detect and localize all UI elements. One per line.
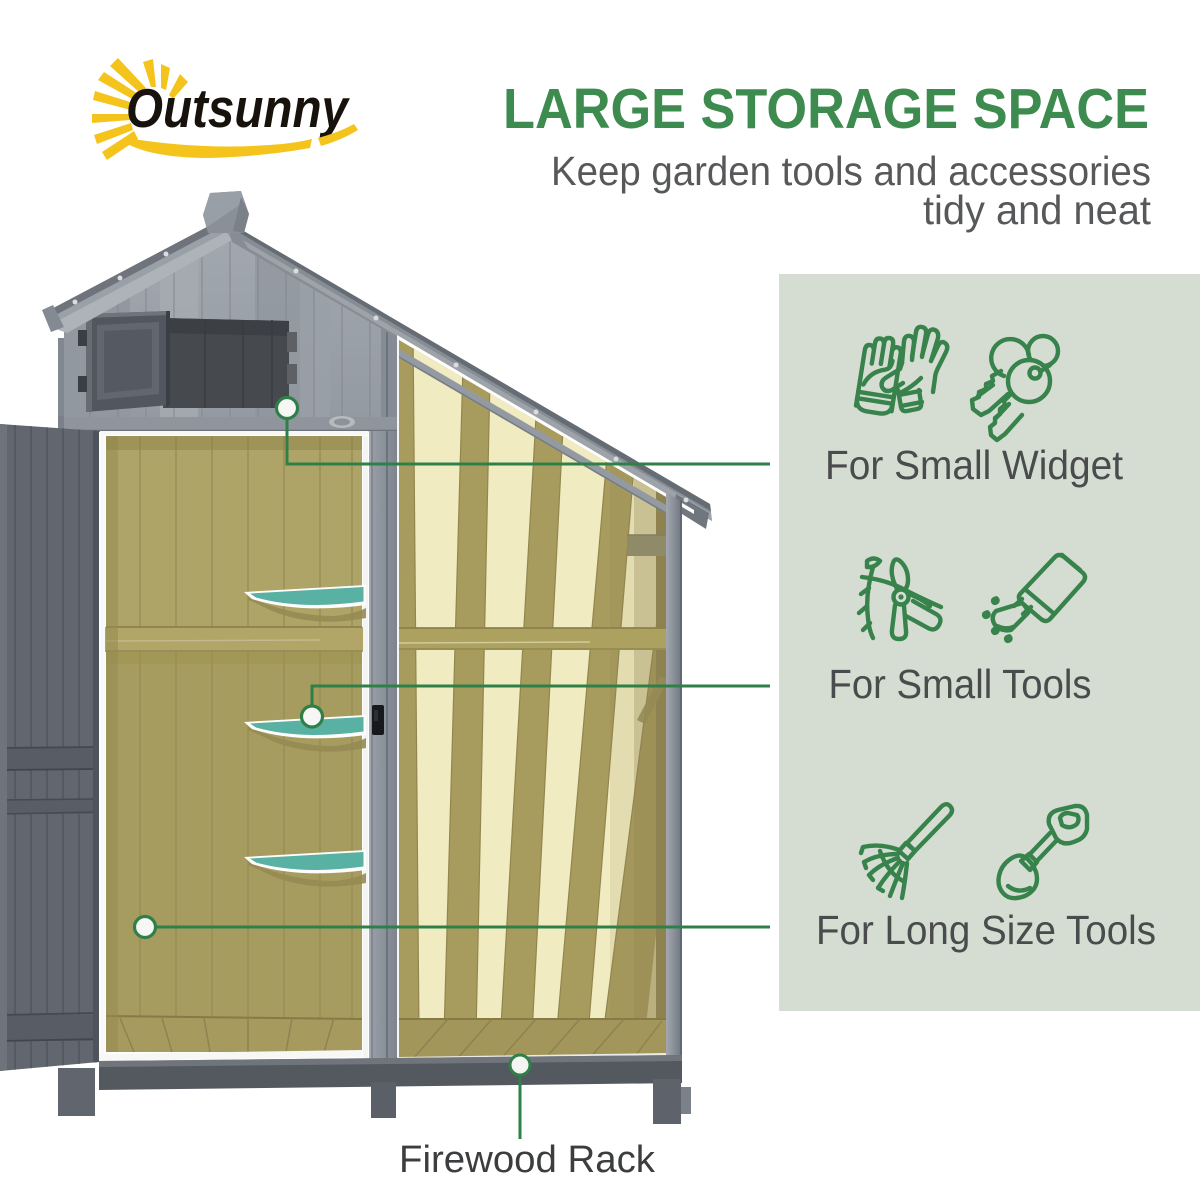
svg-text:Firewood Rack: Firewood Rack	[399, 1139, 656, 1181]
svg-text:tidy and neat: tidy and neat	[923, 187, 1152, 233]
svg-text:LARGE STORAGE SPACE: LARGE STORAGE SPACE	[503, 77, 1149, 141]
svg-text:For Small Widget: For Small Widget	[825, 442, 1124, 488]
svg-text:For Small Tools: For Small Tools	[829, 661, 1092, 707]
svg-text:Outsunny: Outsunny	[126, 77, 350, 139]
svg-text:For Long Size Tools: For Long Size Tools	[816, 907, 1156, 953]
